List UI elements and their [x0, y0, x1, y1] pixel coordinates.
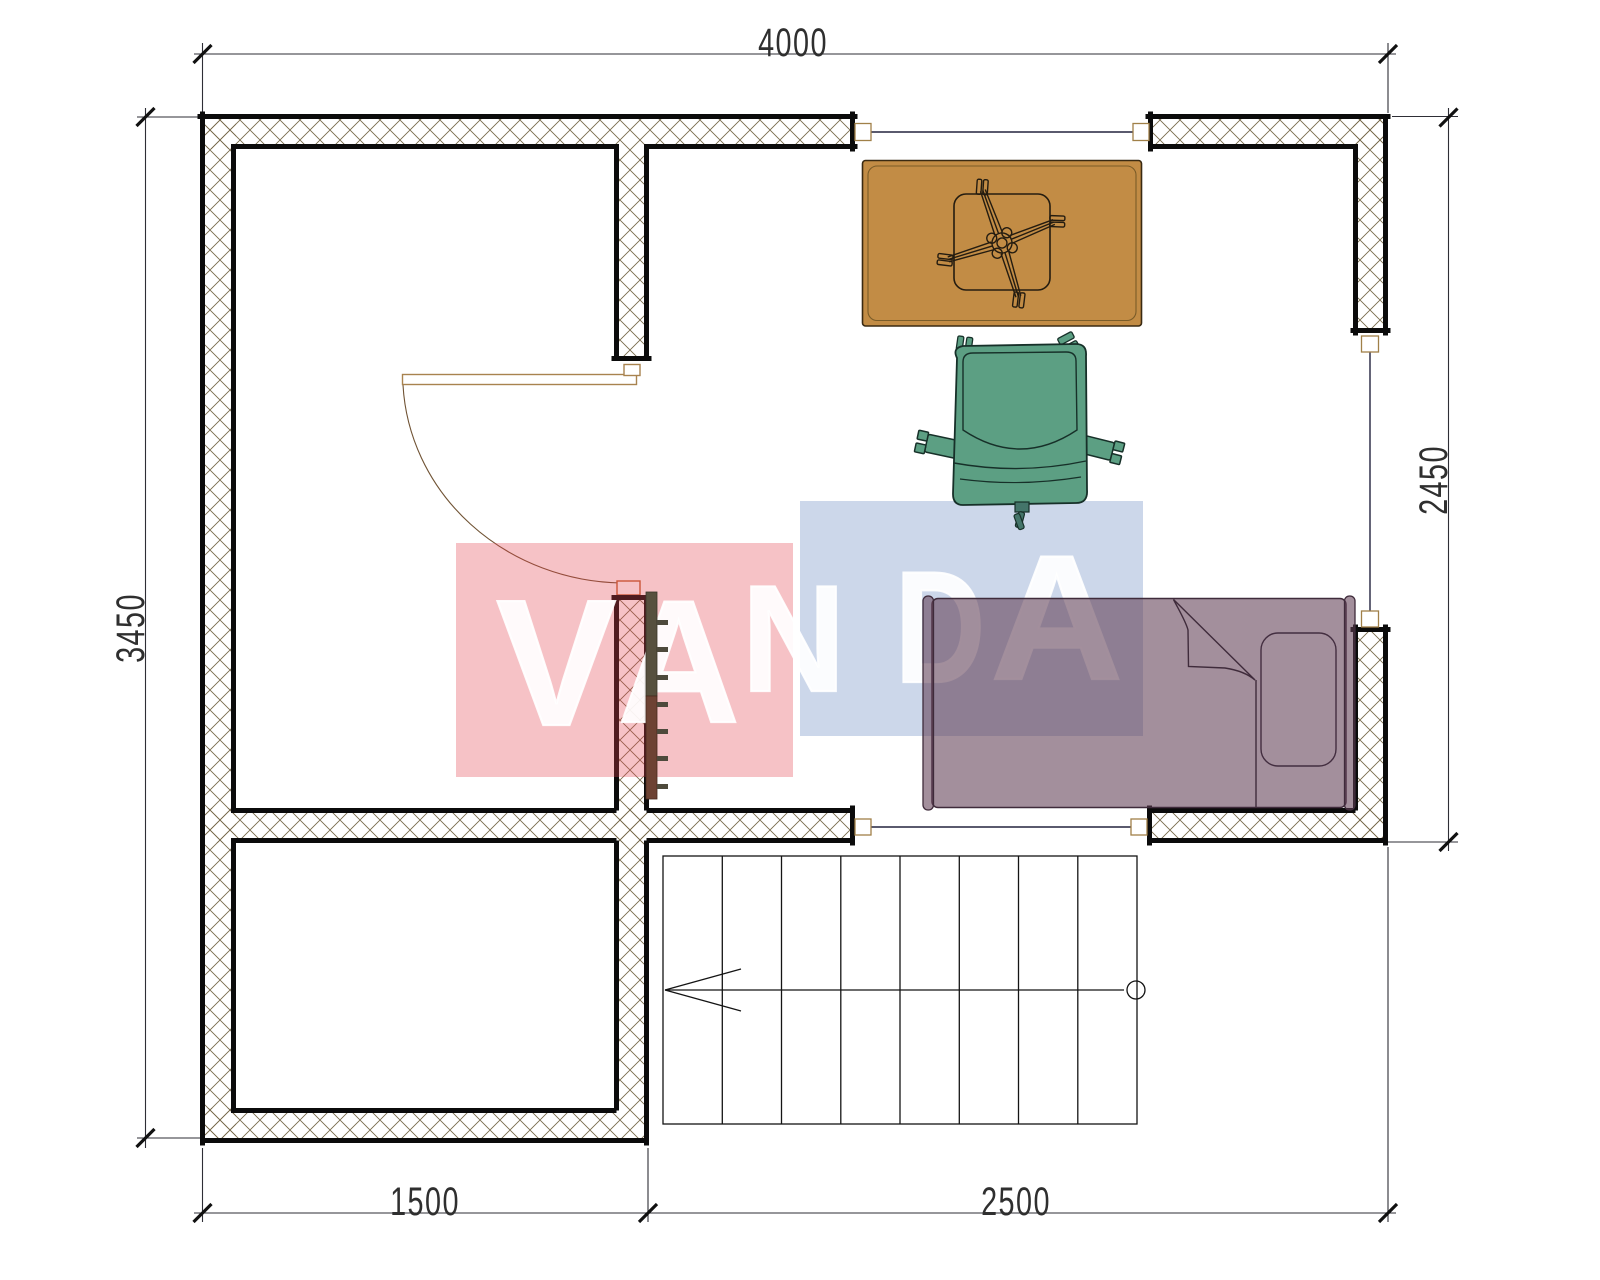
svg-text:1500: 1500: [390, 1179, 460, 1224]
svg-text:V: V: [496, 563, 616, 764]
svg-text:2450: 2450: [1411, 445, 1456, 515]
svg-text:4000: 4000: [758, 20, 828, 65]
svg-text:A: A: [618, 564, 740, 759]
svg-text:3450: 3450: [108, 593, 153, 663]
svg-text:2500: 2500: [981, 1179, 1051, 1224]
svg-text:N: N: [742, 554, 846, 723]
